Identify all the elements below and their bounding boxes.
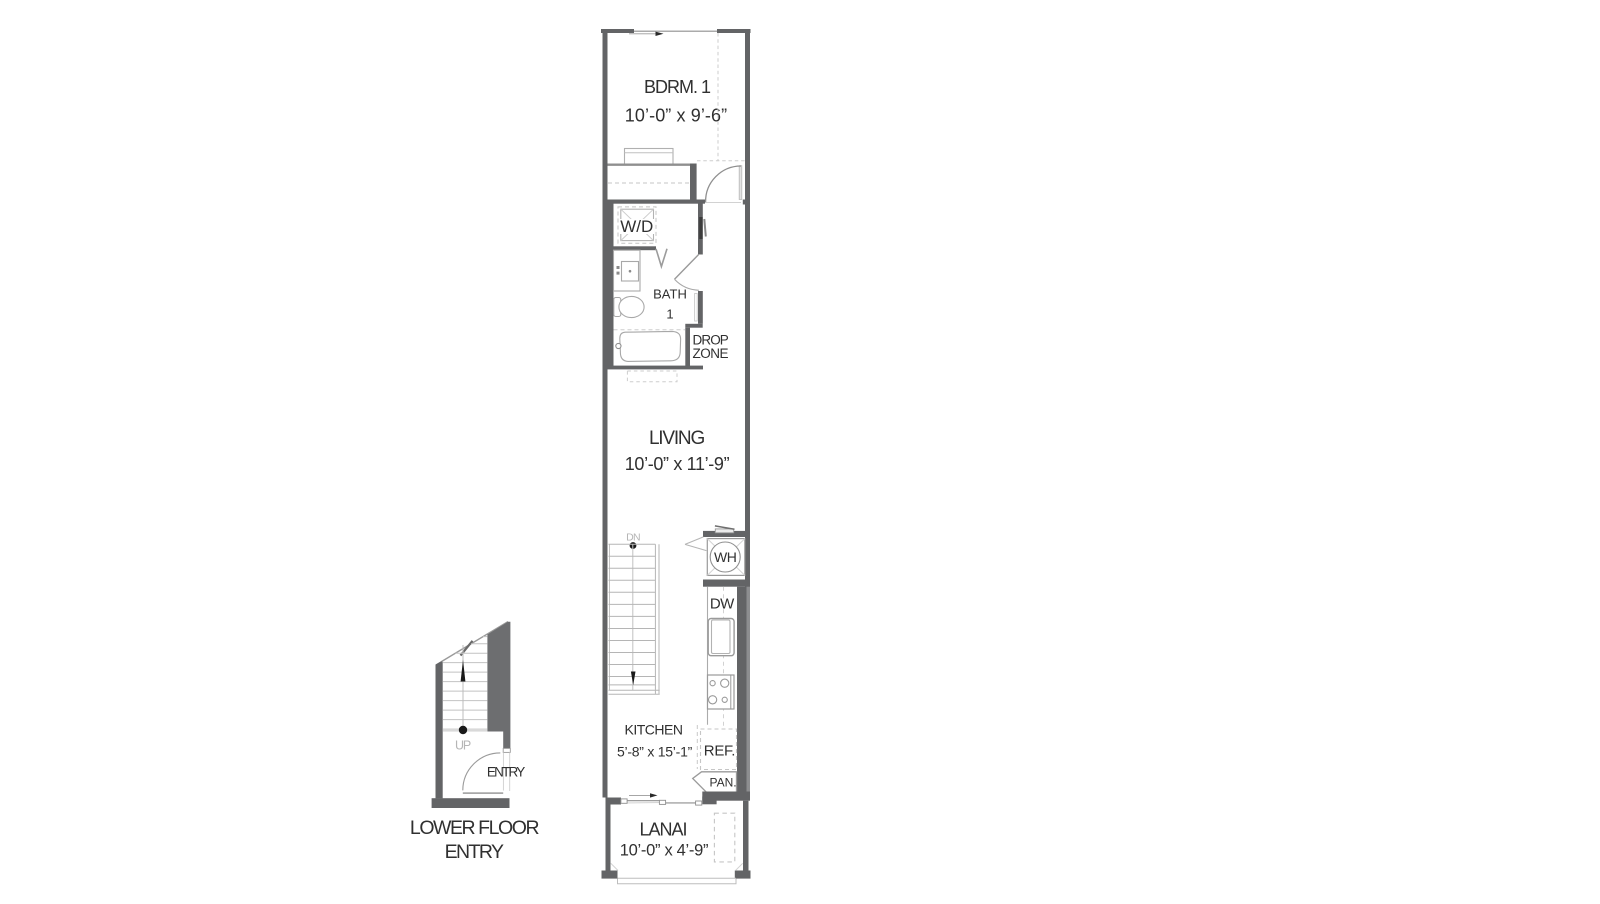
svg-text:UP: UP — [455, 739, 471, 753]
svg-text:BATH: BATH — [653, 287, 687, 302]
svg-text:ENTRY: ENTRY — [445, 841, 504, 863]
svg-text:1: 1 — [666, 307, 673, 322]
svg-text:LOWER FLOOR: LOWER FLOOR — [410, 817, 540, 839]
svg-text:BDRM. 1: BDRM. 1 — [644, 77, 711, 97]
svg-text:DN: DN — [626, 532, 640, 544]
svg-text:WH: WH — [714, 549, 736, 565]
svg-text:W/D: W/D — [620, 217, 653, 236]
svg-text:ZONE: ZONE — [693, 346, 729, 361]
svg-text:10’-0” x 9’-6”: 10’-0” x 9’-6” — [625, 106, 727, 126]
svg-text:REF.: REF. — [704, 743, 735, 760]
svg-text:ENTRY: ENTRY — [487, 764, 525, 779]
svg-text:DW: DW — [710, 596, 735, 613]
svg-text:LIVING: LIVING — [649, 428, 705, 449]
svg-text:10’-0” x 11’-9”: 10’-0” x 11’-9” — [625, 454, 730, 474]
svg-text:10’-0” x 4’-9”: 10’-0” x 4’-9” — [620, 842, 708, 860]
svg-text:KITCHEN: KITCHEN — [625, 722, 683, 738]
svg-text:5’-8” x 15’-1”: 5’-8” x 15’-1” — [617, 744, 693, 760]
svg-text:LANAI: LANAI — [639, 820, 686, 840]
svg-text:PAN.: PAN. — [710, 776, 737, 790]
